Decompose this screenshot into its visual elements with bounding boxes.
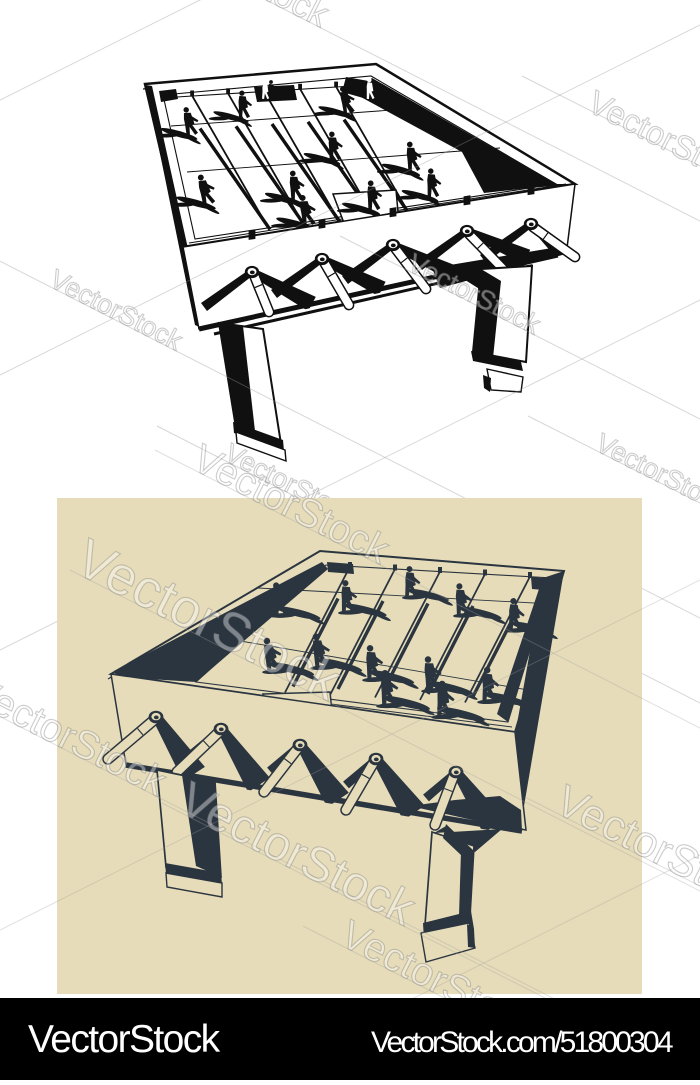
svg-text:VectorStock.com/51800304: VectorStock.com/51800304 (371, 1026, 673, 1059)
svg-text:VectorStock: VectorStock (28, 1018, 221, 1061)
